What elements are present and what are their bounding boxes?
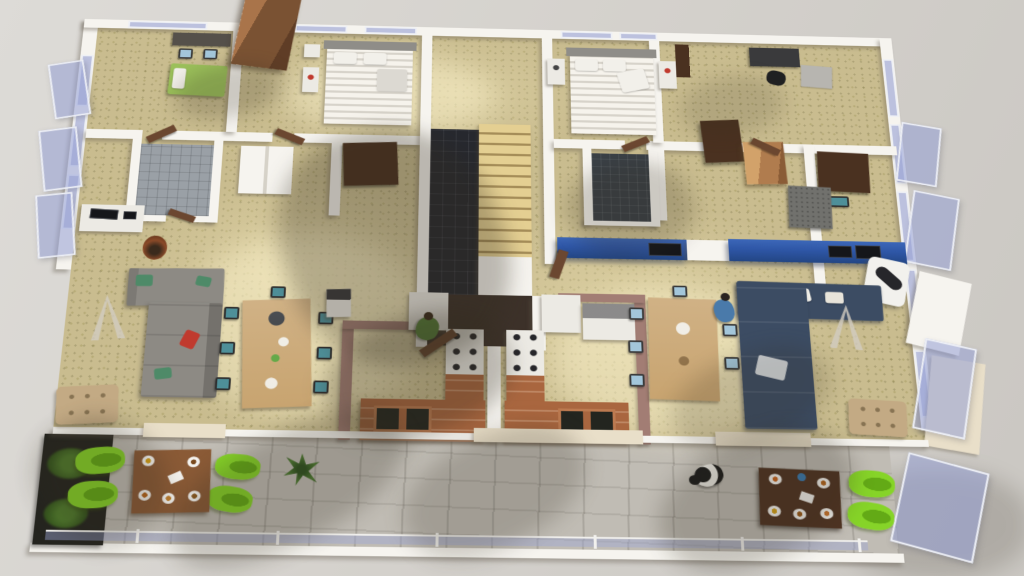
dining-chair xyxy=(672,286,687,298)
balcony-end-glass xyxy=(890,452,989,564)
tv-wall-gap xyxy=(686,240,729,261)
pillow xyxy=(334,52,357,64)
rail-post xyxy=(594,535,597,549)
speaker xyxy=(123,211,137,219)
nightstand xyxy=(658,61,677,89)
north-window xyxy=(619,32,657,40)
pillow xyxy=(603,60,626,72)
dining-chair xyxy=(628,340,643,353)
gas-stove xyxy=(506,330,544,376)
desk xyxy=(172,32,231,46)
office-cabinet xyxy=(675,44,691,77)
facade-glass-panel xyxy=(896,122,942,187)
office-desk xyxy=(749,48,800,68)
sofa-pillow-red xyxy=(179,329,201,350)
nightstand xyxy=(304,44,320,57)
north-window xyxy=(365,26,417,34)
tv-screen xyxy=(828,246,853,258)
tv-screen xyxy=(89,208,118,219)
sofa-pillow xyxy=(825,292,844,304)
master-bed xyxy=(324,46,413,125)
dining-chair xyxy=(629,374,645,387)
bed-blanket xyxy=(377,69,408,91)
north-window xyxy=(295,25,348,33)
kitchen-appliance xyxy=(582,303,635,340)
kitchen-counter xyxy=(506,375,544,403)
render-viewport xyxy=(0,0,1024,576)
pillow xyxy=(616,68,650,93)
gray-sofa-chaise xyxy=(141,302,223,398)
floorplan-3d-view xyxy=(10,19,970,576)
sliding-door-header xyxy=(143,423,226,438)
bathroom-floor xyxy=(135,144,214,217)
facade-glass-panel xyxy=(35,192,76,259)
nightstand xyxy=(302,67,319,92)
sofa-pillow-green xyxy=(154,367,172,380)
pillow xyxy=(575,59,598,71)
tv-console xyxy=(79,204,145,232)
bed-headboard xyxy=(324,40,417,51)
dining-chair xyxy=(316,347,332,360)
dining-chair xyxy=(722,324,738,337)
dining-table xyxy=(242,299,312,409)
dining-chair xyxy=(629,307,644,320)
dining-chair xyxy=(215,377,231,390)
office-rug xyxy=(801,65,832,89)
facade-glass-panel xyxy=(904,190,960,271)
concrete-block xyxy=(788,185,833,229)
gray-sofa-back xyxy=(126,268,225,306)
desk-chair xyxy=(203,49,218,59)
bed-headboard xyxy=(566,47,656,58)
napkin xyxy=(167,471,184,484)
master-bed xyxy=(570,53,657,135)
bedroom-living-wall xyxy=(86,129,143,139)
nightstand xyxy=(547,58,565,84)
desk-chair xyxy=(178,48,193,58)
dining-chair xyxy=(224,307,240,320)
food-plate xyxy=(187,456,200,467)
dining-chair xyxy=(219,342,235,355)
facade-glass-panel xyxy=(48,60,92,120)
pillow xyxy=(363,53,386,65)
sofa-pillow-green xyxy=(135,275,153,286)
person-head xyxy=(720,293,730,301)
sofa-pillow-green xyxy=(195,275,212,287)
dining-chair xyxy=(270,286,286,298)
north-window xyxy=(561,31,613,39)
tufted-ottoman xyxy=(848,398,908,438)
facade-glass-panel xyxy=(38,126,82,191)
fridge xyxy=(541,294,581,332)
